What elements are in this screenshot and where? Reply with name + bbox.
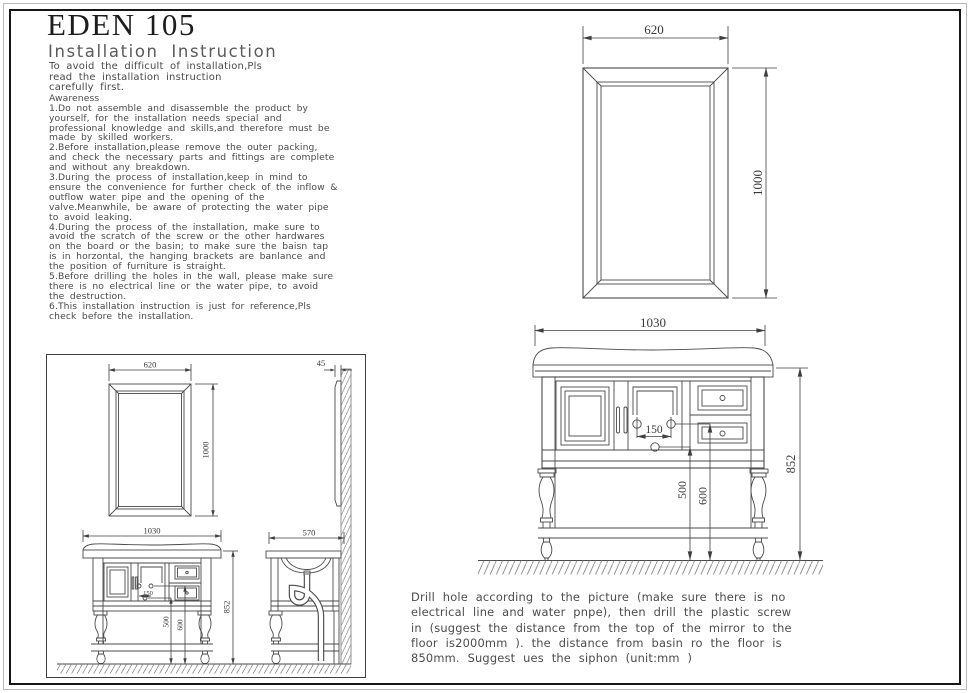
- panel-vanity-front: [83, 544, 221, 611]
- text-line: yourself, for the installation needs spe…: [49, 114, 359, 124]
- left-leg: [538, 469, 556, 561]
- panel-side-back-leg: [334, 611, 339, 664]
- right-leg: [750, 469, 768, 561]
- panel-600-label: 600: [175, 619, 184, 631]
- installation-layout-panel: 620 1000 45 1030: [46, 354, 366, 678]
- panel-side-front-leg: [269, 611, 282, 664]
- dimension-mirror-height: 1000: [732, 68, 777, 298]
- ground-hatch: [478, 561, 823, 575]
- awareness-text-block: To avoid the difficult of installation,P…: [49, 62, 359, 322]
- panel-right-leg: [198, 611, 211, 664]
- panel-vanity-base: [91, 611, 213, 664]
- center-door: [628, 381, 682, 450]
- panel-side-depth-label: 570: [303, 528, 316, 538]
- panel-vanity-side-view: [266, 551, 341, 664]
- text-line: Drill hole according to the picture (mak…: [411, 590, 841, 605]
- dimension-500: 500: [659, 447, 690, 560]
- drawer-stack: [690, 381, 751, 450]
- panel-left-leg: [94, 611, 107, 664]
- installation-layout-drawing: 620 1000 45 1030: [47, 355, 365, 677]
- panel-mirror-height-label: 1000: [201, 442, 211, 459]
- instruction-sheet: EDEN 105 Installation Instruction To avo…: [0, 0, 970, 693]
- panel-500-label: 500: [161, 616, 170, 628]
- dimension-vanity-width: 1030: [535, 315, 765, 346]
- mirror-front-drawing: 620 1000: [555, 14, 810, 310]
- drawer-knob: [720, 431, 725, 436]
- text-line: floor is2000mm ). the distance from basi…: [411, 636, 841, 651]
- page-subtitle: Installation Instruction: [48, 42, 277, 61]
- text-line: check before the installation.: [49, 312, 359, 322]
- mirror-height-label: 1000: [750, 170, 765, 196]
- dimension-mirror-width: 620: [583, 22, 728, 64]
- panel-dimension-mirror-height: 1000: [195, 384, 218, 516]
- text-line: To avoid the difficult of installation,P…: [49, 62, 359, 73]
- text-line: in (suggest the distance from the top of…: [411, 621, 841, 636]
- dimension-hole-spacing: 150: [637, 424, 671, 437]
- vanity-countertop: [533, 348, 773, 377]
- page-title: EDEN 105: [47, 7, 196, 43]
- panel-mirror-depth-label: 45: [317, 358, 326, 368]
- text-line: electrical line and water pnpe), then dr…: [411, 605, 841, 620]
- mirror-width-label: 620: [644, 22, 664, 37]
- upper-hole-height-label: 600: [695, 487, 709, 505]
- lower-hole-height-label: 500: [675, 481, 689, 499]
- panel-vanity-height-label: 852: [222, 601, 232, 614]
- mirror-side-profile: [335, 381, 341, 506]
- panel-mounting-holes: 150: [137, 584, 153, 600]
- panel-dimension-mirror-width: 620: [109, 360, 191, 382]
- door-handles: [617, 407, 628, 433]
- vanity-base: [538, 468, 768, 538]
- vanity-width-label: 1030: [640, 315, 666, 330]
- hole-spacing-label: 150: [645, 424, 663, 436]
- text-line: 850mm. Suggest ues the siphon (unit:mm ): [411, 651, 841, 666]
- panel-dimension-side-depth: 570: [269, 528, 344, 545]
- panel-mirror-frame: [109, 384, 191, 516]
- mirror-frame: [583, 68, 728, 298]
- vanity-height-label: 852: [784, 455, 798, 474]
- panel-dimension-vanity-height: 852: [222, 551, 238, 664]
- panel-ground-hatch: [57, 664, 351, 674]
- panel-vanity-width-label: 1030: [144, 526, 161, 536]
- dimension-vanity-height: 852: [776, 368, 808, 560]
- wall-section: [341, 369, 351, 664]
- panel-dimension-vanity-width: 1030: [83, 526, 221, 543]
- siphon-pipe: [292, 575, 321, 661]
- vanity-front-drawing: 1030: [470, 312, 826, 584]
- drill-note-block: Drill hole according to the picture (mak…: [411, 590, 841, 666]
- left-door: [556, 381, 614, 450]
- panel-dimension-500: 500: [148, 598, 171, 664]
- panel-mirror-width-label: 620: [144, 360, 157, 370]
- drawer-knob: [720, 396, 725, 401]
